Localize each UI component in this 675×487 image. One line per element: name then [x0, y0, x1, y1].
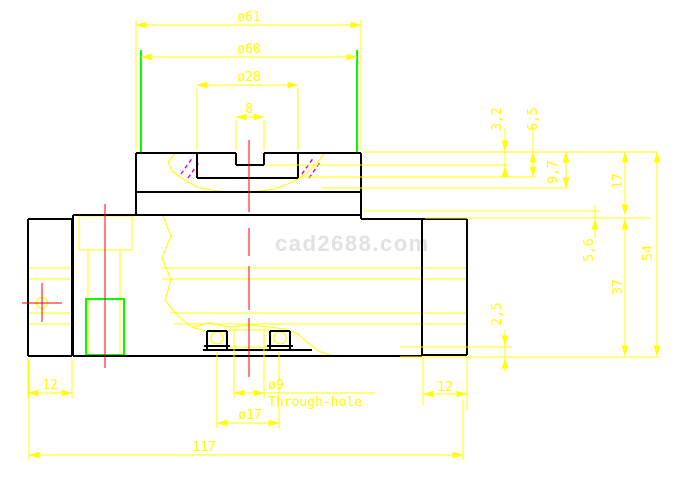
dim-depth-2-5: 2,5 [490, 302, 505, 325]
dim-right-width-12: 12 [437, 380, 453, 395]
dim-hole-dia9: ø9 [268, 378, 284, 393]
dim-depth-5-6: 5,6 [582, 238, 597, 261]
dim-depth-3-2: 3,2 [490, 107, 505, 130]
dim-height-17: 17 [611, 173, 626, 189]
dim-depth-9-7: 9,7 [546, 160, 561, 183]
section-hatch [181, 157, 321, 178]
dim-left-width-12: 12 [42, 378, 58, 393]
dim-depth-6-5: 6,5 [526, 107, 541, 130]
green-highlights [86, 50, 357, 355]
dim-dia28: ø28 [237, 70, 260, 85]
dim-counterbore-dia17: ø17 [238, 408, 261, 423]
watermark-text: cad2688.com [275, 231, 430, 256]
bore-lines [28, 268, 467, 324]
left-ball-circle [211, 332, 223, 344]
dim-slot-width-8: 8 [245, 102, 253, 117]
dim-total-length-117: 117 [192, 440, 215, 455]
right-ball-circle [274, 332, 286, 344]
hole-note-label: Through-hole [268, 395, 362, 410]
dim-height-37: 37 [611, 279, 626, 295]
dim-height-54: 54 [641, 245, 656, 261]
dim-dia61: ø61 [237, 10, 260, 25]
cad-drawing-canvas: cad2688.com [0, 0, 675, 487]
dim-dia60: ø60 [237, 42, 260, 57]
